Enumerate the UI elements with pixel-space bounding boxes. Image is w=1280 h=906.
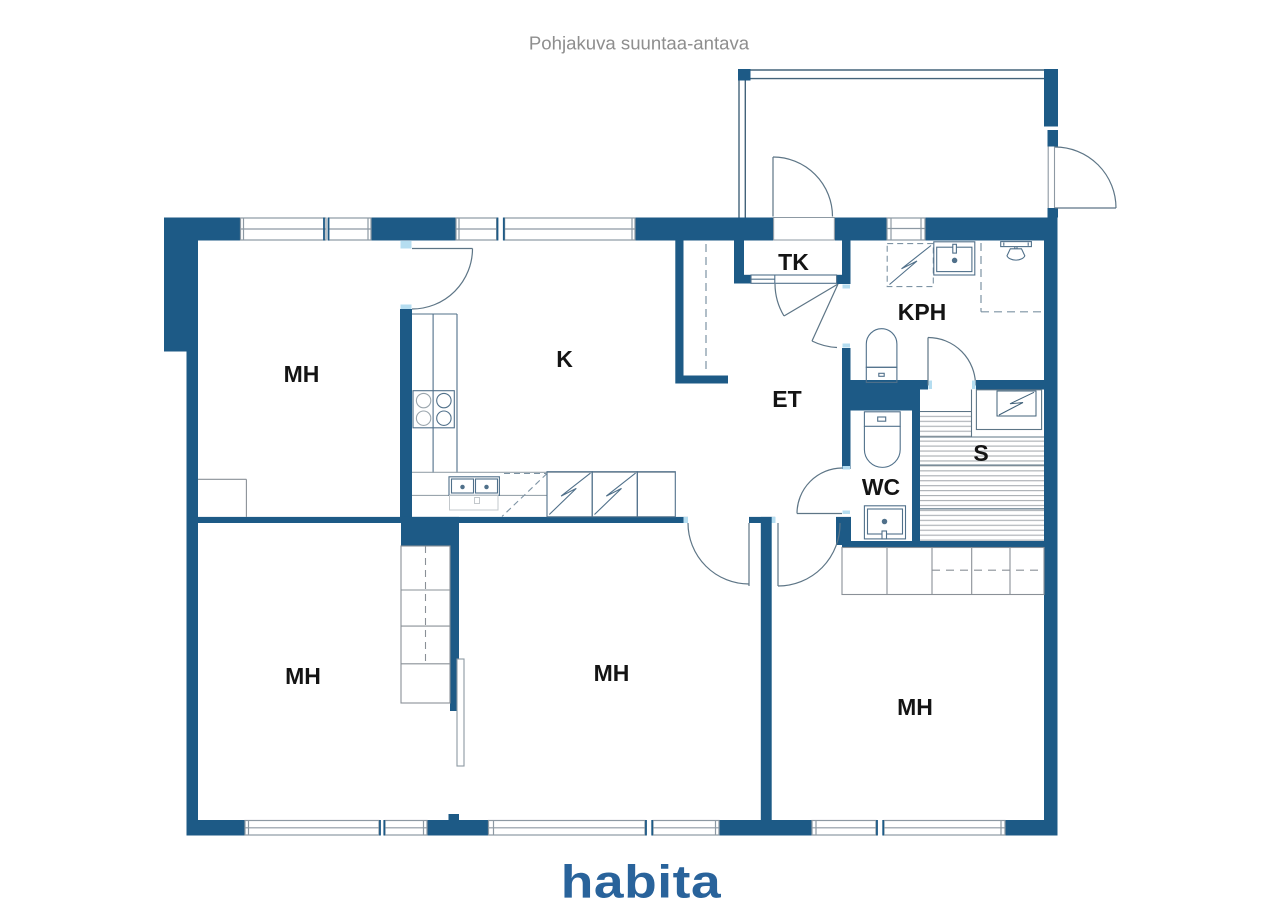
svg-text:MH: MH bbox=[897, 694, 933, 720]
svg-text:MH: MH bbox=[285, 663, 321, 689]
svg-text:TK: TK bbox=[778, 249, 809, 275]
svg-text:S: S bbox=[973, 440, 988, 466]
svg-text:MH: MH bbox=[594, 660, 630, 686]
svg-text:MH: MH bbox=[284, 361, 320, 387]
svg-text:K: K bbox=[556, 346, 573, 372]
svg-text:Pohjakuva suuntaa-antava: Pohjakuva suuntaa-antava bbox=[529, 33, 750, 54]
svg-text:WC: WC bbox=[862, 474, 900, 500]
svg-text:ET: ET bbox=[772, 386, 801, 412]
svg-text:habita: habita bbox=[561, 856, 722, 906]
svg-text:KPH: KPH bbox=[898, 299, 947, 325]
